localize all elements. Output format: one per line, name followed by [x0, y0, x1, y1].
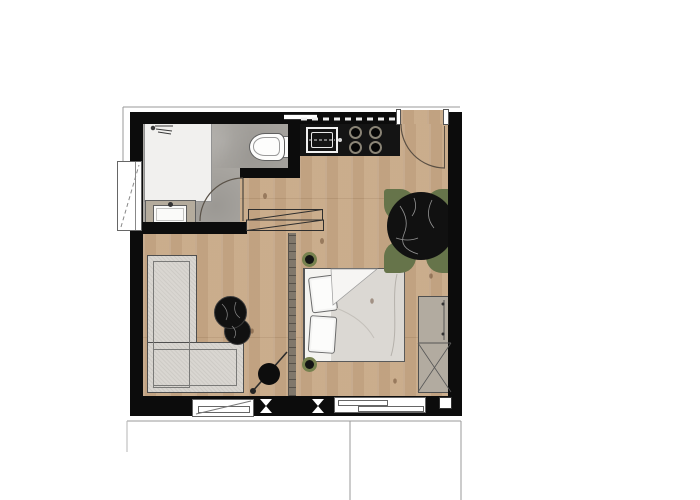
dining-table: [387, 192, 455, 260]
wall-corner-notch: [439, 397, 452, 409]
toilet: [249, 133, 285, 161]
cooktop-burner: [349, 126, 362, 139]
duvet: [331, 269, 404, 361]
plant-pot-center: [305, 360, 314, 369]
basin-faucet: [168, 202, 173, 207]
wall-top: [130, 112, 396, 124]
wardrobe: [418, 296, 451, 393]
washbasin-inner-line: [156, 208, 184, 221]
plant-pot-bottom: [302, 357, 317, 372]
kitchen-sink: [306, 127, 338, 153]
living-window: [192, 399, 254, 417]
wall-right: [448, 112, 462, 416]
partition-wall: [288, 233, 296, 396]
kitchen-sink-basin-line: [311, 132, 333, 148]
cooktop-burner: [369, 126, 382, 139]
balcony-sliding-window: [334, 397, 426, 413]
plant-pot-top: [302, 252, 317, 267]
sofa-cushion-line-bottom: [153, 349, 237, 386]
plant-pot-center: [305, 255, 314, 264]
pillow-top: [308, 275, 338, 314]
toilet-bowl-line: [253, 137, 280, 156]
floor-plan-canvas: [0, 0, 700, 500]
window-sill: [198, 406, 250, 413]
cooktop-burner: [349, 141, 362, 154]
slider-panel-right: [358, 406, 424, 412]
entry-door-jamb-left: [396, 109, 401, 125]
cooktop-burner: [369, 141, 382, 154]
entry-threshold-floor: [401, 110, 443, 124]
wall-left: [130, 112, 143, 416]
shower-tray: [144, 123, 212, 202]
wall-bathroom-horizontal: [240, 168, 300, 178]
coffee-table-large: [214, 296, 247, 329]
window-frame-line: [135, 162, 136, 230]
bathroom-window: [117, 161, 142, 231]
wall-bathroom-bottom: [143, 222, 247, 234]
kitchen-strip-window: [284, 114, 317, 120]
pillow-bottom: [308, 315, 338, 354]
entry-door-jamb-right: [443, 109, 449, 125]
